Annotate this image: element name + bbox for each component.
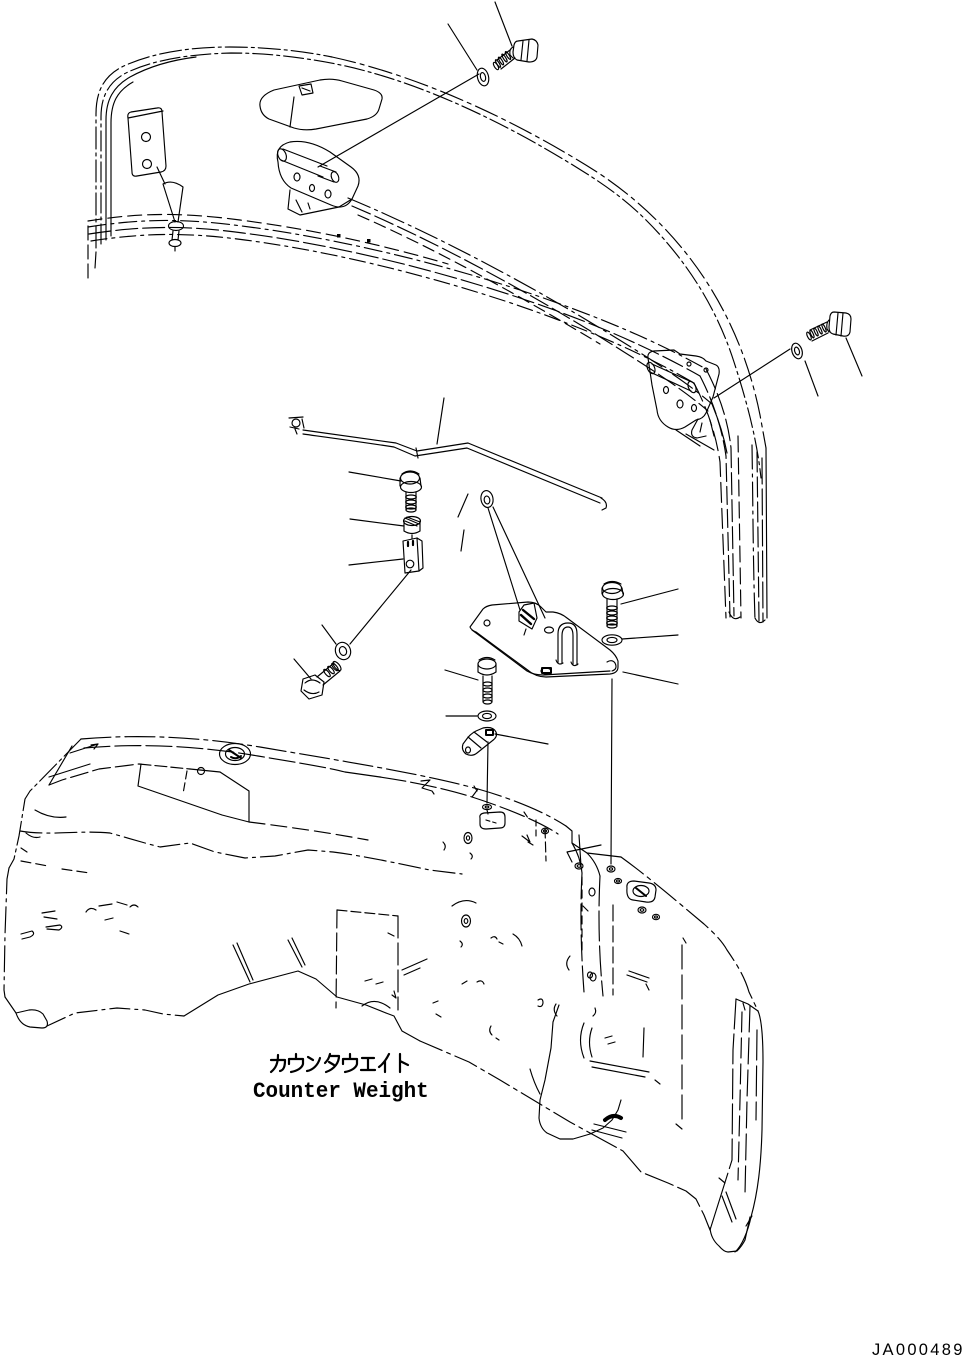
svg-text:Counter Weight: Counter Weight	[253, 1078, 429, 1104]
svg-text:JA000489: JA000489	[872, 1341, 964, 1356]
